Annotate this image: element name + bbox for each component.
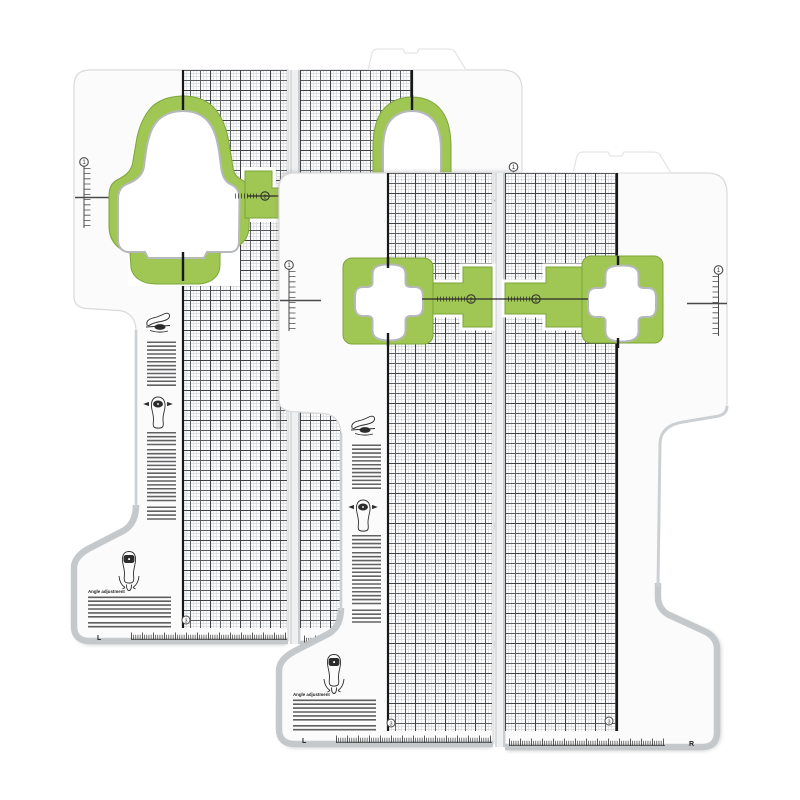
svg-text:2: 2: [534, 297, 537, 303]
svg-text:2: 2: [469, 297, 472, 303]
svg-text:2: 2: [263, 194, 266, 200]
